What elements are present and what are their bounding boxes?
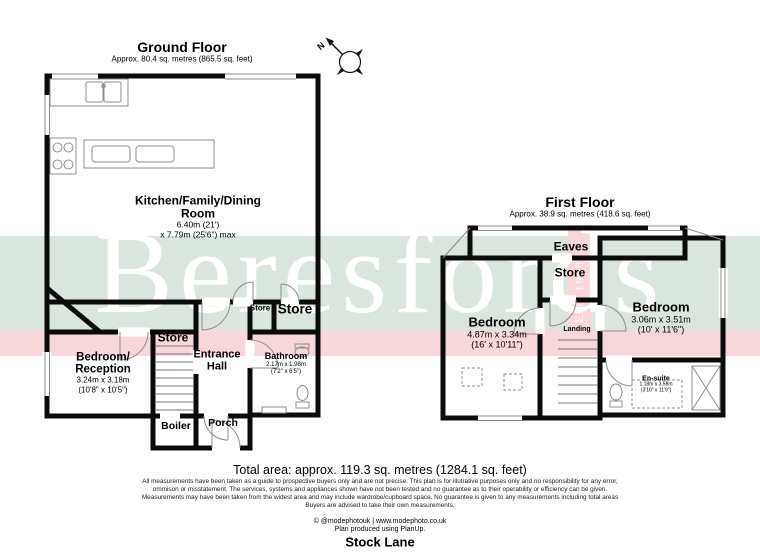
disclaimer-line-2: ommison or misstatement. The services, s… bbox=[0, 486, 760, 494]
bedroom-right-name: Bedroom bbox=[631, 301, 691, 315]
compass-icon bbox=[326, 38, 364, 76]
bathroom-dim-imperial: (7'2" x 6'5") bbox=[265, 369, 308, 376]
entrance-hall-name-line2: Hall bbox=[193, 361, 240, 373]
kitchen-name-line2: Room bbox=[135, 207, 261, 220]
address-title: Stock Lane bbox=[345, 536, 414, 551]
disclaimer-line-4: Buyers are advised to take their own mea… bbox=[0, 502, 760, 510]
bathroom-name: Bathroom bbox=[265, 352, 308, 362]
kitchen-name-line1: Kitchen/Family/Dining bbox=[135, 194, 261, 207]
bedroom-left-name: Bedroom bbox=[467, 316, 527, 330]
bedroom-right-dim-metric: 3.06m x 3.51m bbox=[631, 314, 691, 325]
stairs-first-floor bbox=[558, 340, 598, 403]
bedroom-right-label: Bedroom 3.06m x 3.51m (10' x 11'6") bbox=[631, 301, 691, 336]
bedroom-reception-label: Bedroom/ Reception 3.24m x 3.18m (10'8" … bbox=[75, 351, 131, 394]
kitchen-dim-metric: 6.40m (21') bbox=[135, 220, 261, 230]
disclaimer-text: All measurements have been taken as a gu… bbox=[0, 478, 760, 510]
ensuite-dim-imperial: (3'10" x 11'9") bbox=[639, 389, 672, 395]
bedroom-reception-dim-metric: 3.24m x 3.18m bbox=[75, 376, 131, 385]
entrance-hall-label: Entrance Hall bbox=[193, 349, 240, 372]
bathroom-dim-metric: 2.17m x 1.98m bbox=[265, 362, 308, 369]
disclaimer-line-1: All measurements have been taken as a gu… bbox=[0, 478, 760, 486]
kitchen-dim-imperial: x 7.79m (25'6") max bbox=[135, 230, 261, 240]
floorplan-page: { "brand": { "watermark": "Beresfords", … bbox=[0, 0, 760, 552]
bathroom-label: Bathroom 2.17m x 1.98m (7'2" x 6'5") bbox=[265, 352, 308, 376]
eaves-label: Eaves bbox=[554, 240, 589, 253]
total-area-text: Total area: approx. 119.3 sq. metres (12… bbox=[233, 463, 527, 477]
first-floor-subtitle: Approx. 38.9 sq. metres (418.6 sq. feet) bbox=[510, 211, 651, 220]
stairs-ground-floor bbox=[156, 346, 193, 410]
first-floor-title: First Floor bbox=[545, 195, 614, 211]
bedroom-left-label: Bedroom 4.87m x 3.34m (16' x 10'11") bbox=[467, 316, 527, 351]
bedroom-reception-dim-imperial: (10'8" x 10'5") bbox=[75, 385, 131, 394]
bedroom-reception-name-line2: Reception bbox=[75, 364, 131, 376]
disclaimer-line-3: Measurements may have been taken from th… bbox=[0, 494, 760, 502]
porch-label: Porch bbox=[208, 418, 238, 430]
ensuite-label: En-suite 1.18m x 3.58m (3'10" x 11'9") bbox=[639, 375, 672, 394]
ground-floor-subtitle: Approx. 80.4 sq. metres (865.5 sq. feet) bbox=[112, 56, 253, 65]
boiler-label: Boiler bbox=[161, 421, 191, 433]
landing-label: Landing bbox=[563, 326, 590, 334]
store-large-label: Store bbox=[278, 301, 313, 316]
kitchen-label: Kitchen/Family/Dining Room 6.40m (21') x… bbox=[135, 194, 261, 239]
photo-credit-text: © @modephotouk | www.modephoto.co.uk bbox=[314, 518, 447, 526]
wall-openings bbox=[43, 72, 728, 453]
planup-credit-text: Plan produced using PlanUp. bbox=[335, 526, 426, 534]
ground-floor-title: Ground Floor bbox=[137, 40, 226, 56]
store-small-label: Store bbox=[250, 305, 270, 314]
bedroom-left-dim-imperial: (16' x 10'11") bbox=[467, 340, 527, 351]
bedroom-reception-name-line1: Bedroom/ bbox=[75, 351, 131, 363]
bedroom-right-dim-imperial: (10' x 11'6") bbox=[631, 325, 691, 336]
entrance-hall-name-line1: Entrance bbox=[193, 349, 240, 361]
kitchen-fixtures bbox=[50, 79, 214, 174]
bedroom-left-dim-metric: 4.87m x 3.34m bbox=[467, 329, 527, 340]
store-first-floor-label: Store bbox=[555, 266, 586, 279]
window-lines bbox=[45, 74, 725, 421]
store-stairs-label: Store bbox=[158, 331, 189, 344]
